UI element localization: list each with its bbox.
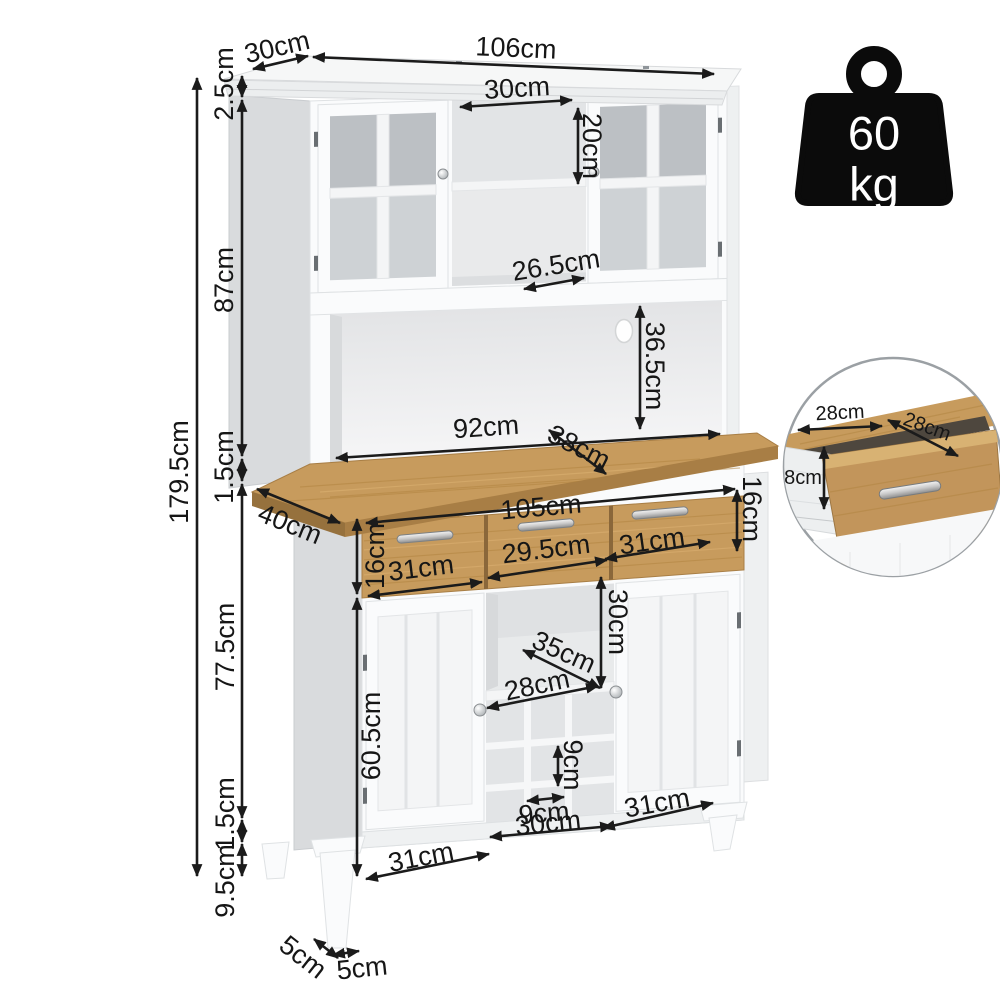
drawer-detail-inset: 28cm 28cm 8cm (780, 358, 1000, 577)
dim-hutch-height-label: 87cm (209, 247, 239, 313)
base-right-door (616, 574, 740, 811)
base-left-side-panel (294, 508, 362, 850)
dim-leg-width-label: 5cm (335, 950, 389, 985)
door-knob-right (610, 686, 622, 698)
dim-leg-depth-label: 5cm (274, 929, 333, 984)
glass-door-knob-left (438, 169, 448, 179)
dim-drawer-height-right: 16cm (737, 476, 767, 551)
dim-base-height-label: 77.5cm (210, 603, 240, 692)
dim-drawer-height-right-label: 16cm (737, 476, 767, 542)
dim-total-height-label: 179.5cm (164, 420, 194, 524)
weight-unit: kg (849, 158, 899, 211)
furniture-dimension-diagram: 30cm 106cm 2.5cm 30cm 20cm 87cm 26.5cm (0, 0, 1000, 1000)
dim-inset-drawer-inner-height-label: 8cm (784, 467, 822, 489)
dim-crown-height-label: 2.5cm (209, 47, 239, 121)
foot-front-left (320, 850, 355, 948)
dim-hutch-inner-width-label: 30cm (483, 71, 551, 105)
weight-capacity-badge: 60 kg (798, 54, 950, 211)
dim-hutch-inner-height-label: 20cm (577, 113, 607, 179)
dim-alcove-height-label: 36.5cm (640, 322, 670, 411)
door-knob-left (474, 704, 486, 716)
dim-cube-height: 9cm (558, 739, 588, 790)
dim-door-height-label: 60.5cm (356, 692, 386, 781)
dim-inset-drawer-width-label: 28cm (815, 401, 865, 426)
dim-crown-height: 2.5cm (209, 47, 242, 121)
foot-back-left (262, 842, 289, 879)
weight-value: 60 (848, 107, 900, 160)
dim-leg-height: 9.5cm (210, 844, 242, 918)
hutch-right-edge (727, 86, 739, 446)
dim-counter-thickness-label: 1.5cm (209, 430, 239, 504)
dim-plinth-height: 1.5cm (210, 777, 242, 851)
dim-alcove-width-label: 92cm (452, 410, 520, 445)
cable-hole (616, 320, 633, 343)
dim-total-height: 179.5cm (164, 78, 197, 876)
dim-open-shelf-height-label: 30cm (603, 589, 633, 655)
dim-base-height: 77.5cm (210, 484, 242, 818)
dim-leg-width: 5cm (333, 950, 389, 985)
dim-drawer-height-left-label: 16cm (360, 523, 390, 589)
foot-front-right (709, 815, 737, 851)
dim-leg-height-label: 9.5cm (210, 844, 240, 918)
dim-plinth-height-label: 1.5cm (210, 777, 240, 851)
dim-drawer-height-left: 16cm (357, 519, 390, 594)
dim-hutch-inner-height: 20cm (577, 108, 607, 184)
dim-cube-height-label: 9cm (558, 739, 588, 790)
dim-counter-thickness: 1.5cm (209, 430, 242, 504)
dim-wine-rack-outer-width-label: 30cm (514, 805, 583, 842)
hutch-left-glass-door (318, 100, 448, 293)
dim-top-width-label: 106cm (475, 31, 557, 64)
diagram-canvas: 30cm 106cm 2.5cm 30cm 20cm 87cm 26.5cm (0, 0, 1000, 1000)
